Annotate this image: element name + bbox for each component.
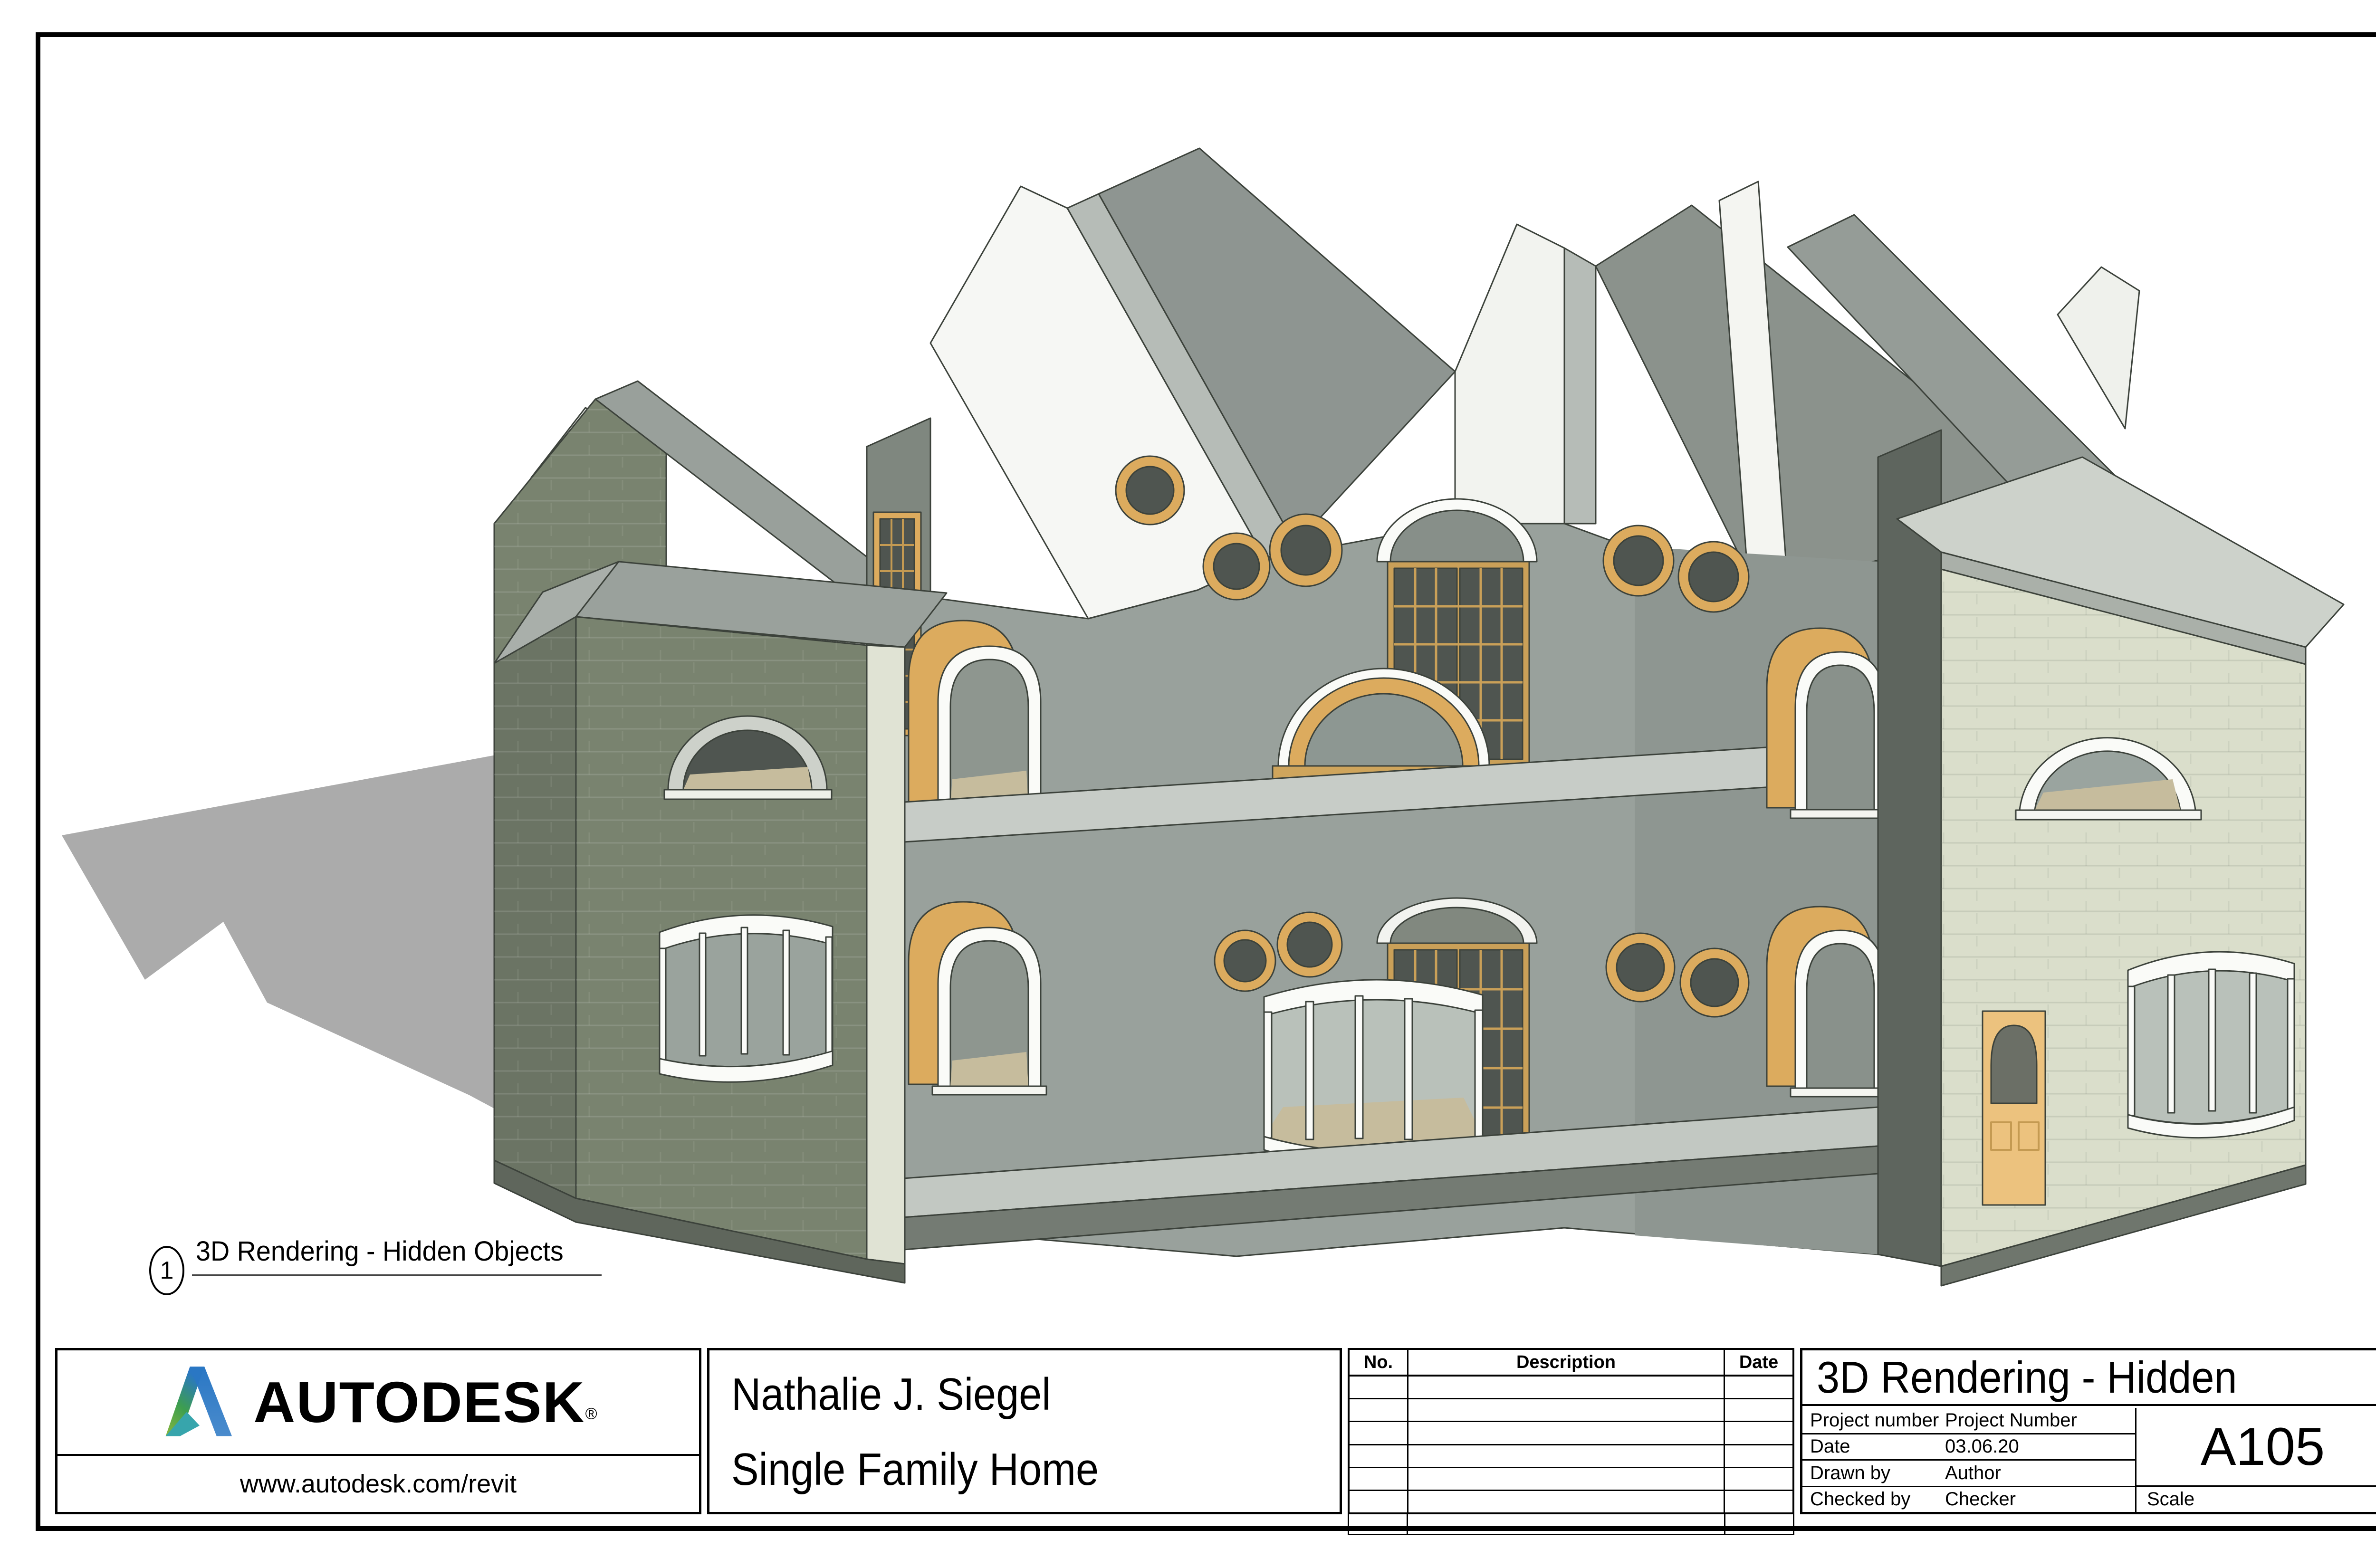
scale-label: Scale (2147, 1489, 2194, 1510)
revision-row (1350, 1422, 1792, 1445)
revision-row (1350, 1445, 1792, 1468)
field-drawn-by: Drawn by Author (1802, 1461, 2135, 1487)
revision-row (1350, 1468, 1792, 1491)
field-checked-by: Checked by Checker (1802, 1487, 2135, 1512)
autodesk-wordmark: AUTODESK® (253, 1369, 597, 1435)
revision-row (1350, 1377, 1792, 1399)
owner-name: Nathalie J. Siegel (731, 1368, 1051, 1421)
autodesk-logo-row: AUTODESK® (57, 1350, 699, 1456)
revision-row (1350, 1399, 1792, 1422)
autodesk-url[interactable]: www.autodesk.com/revit (57, 1456, 699, 1512)
scale-cell: Scale (2135, 1487, 2376, 1512)
titleblock-sheet-info: 3D Rendering - Hidden Project number Pro… (1800, 1348, 2376, 1514)
view-number: 1 (160, 1256, 174, 1285)
view-title-underline (192, 1274, 602, 1276)
revision-header-row: No. Description Date (1350, 1350, 1792, 1377)
autodesk-logo-icon (159, 1362, 240, 1443)
revision-col-description: Description (1408, 1350, 1725, 1375)
revision-col-date: Date (1725, 1350, 1792, 1375)
revision-table-extension (1348, 1514, 1794, 1535)
sheet-info-fields: Project number Project Number Date 03.06… (1802, 1408, 2135, 1512)
registered-mark: ® (585, 1405, 597, 1423)
sheet-border (36, 32, 2376, 1531)
sheet-view-title: 3D Rendering - Hidden (1802, 1350, 2376, 1406)
revision-col-no: No. (1350, 1350, 1408, 1375)
view-title: 3D Rendering - Hidden Objects (196, 1235, 564, 1267)
revision-rows (1350, 1377, 1792, 1512)
view-number-bubble: 1 (149, 1246, 184, 1295)
sheet-number: A105 (2135, 1408, 2376, 1487)
revision-table: No. Description Date (1348, 1348, 1794, 1514)
field-project-number: Project number Project Number (1802, 1408, 2135, 1434)
revision-row (1350, 1491, 1792, 1512)
titleblock-vendor: AUTODESK® www.autodesk.com/revit (55, 1348, 701, 1514)
drawing-sheet: 1 3D Rendering - Hidden Objects (0, 0, 2376, 1568)
field-date: Date 03.06.20 (1802, 1434, 2135, 1461)
project-name: Single Family Home (731, 1444, 1099, 1496)
titleblock-owner: Nathalie J. Siegel Single Family Home (707, 1348, 1342, 1514)
